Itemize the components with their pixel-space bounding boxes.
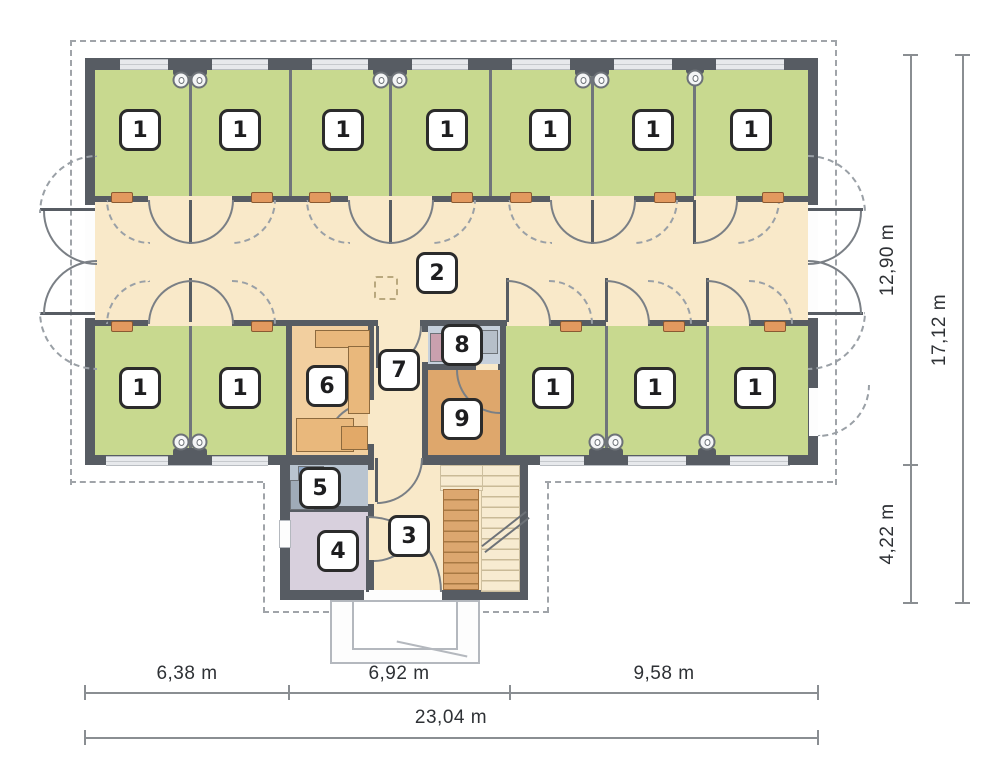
- room-number: 1: [232, 376, 247, 401]
- threshold: [764, 321, 786, 332]
- washbasin-bracket: [589, 448, 623, 464]
- room-badge-corridor: 2: [416, 252, 458, 294]
- room-number: 1: [132, 118, 147, 143]
- threshold: [111, 321, 133, 332]
- dimension-tick: [955, 602, 970, 604]
- room-badge-3: 3: [388, 515, 430, 557]
- room-badge-6: 6: [306, 365, 348, 407]
- room-badge-bedroom: 1: [632, 109, 674, 151]
- wall-block: [468, 58, 512, 70]
- dimension-tick: [817, 685, 819, 700]
- washbasin-bracket: [173, 448, 207, 464]
- room-number: 1: [439, 118, 454, 143]
- roof-outline-bottom-right: [545, 481, 833, 483]
- wall-room8-right: [500, 325, 506, 458]
- partition: [605, 325, 608, 455]
- wall-extension-top-right: [422, 455, 528, 465]
- threshold: [111, 192, 133, 203]
- room-badge-bedroom: 1: [426, 109, 468, 151]
- threshold: [663, 321, 685, 332]
- washbasin-icon: [575, 72, 592, 89]
- room-badge-bedroom: 1: [119, 109, 161, 151]
- window-right-lower: [809, 388, 818, 436]
- washbasin-icon: [391, 72, 408, 89]
- dimension-label: 4,22 m: [877, 503, 899, 564]
- wardrobe: [348, 346, 370, 414]
- service-hatch: [374, 276, 398, 300]
- threshold: [451, 192, 473, 203]
- dimension-tick: [84, 685, 86, 700]
- dimension-label: 9,58 m: [633, 663, 694, 685]
- room-number: 9: [454, 407, 469, 432]
- room-number: 2: [429, 261, 444, 286]
- roof-outline-bottom-left: [70, 481, 263, 483]
- room-number: 1: [743, 118, 758, 143]
- staircase-landing: [440, 465, 483, 491]
- room-badge-bedroom: 1: [634, 367, 676, 409]
- room-number: 3: [401, 524, 416, 549]
- door-swing: [43, 211, 97, 265]
- wall-room6-left: [286, 325, 292, 455]
- door-swing: [808, 260, 862, 314]
- dimension-line-right-outer: [962, 55, 964, 604]
- floor-plan: 1 1 1 1 1 1 1 2 1 1 1 1 1 6 7 8 9 5 4 3 …: [0, 0, 1000, 776]
- dimension-tick: [903, 464, 918, 466]
- washbasin-icon: [191, 434, 208, 451]
- room-number: 1: [335, 118, 350, 143]
- partition: [693, 70, 696, 197]
- dimension-label: 6,92 m: [368, 663, 429, 685]
- washbasin-icon: [607, 434, 624, 451]
- room-badge-bedroom: 1: [219, 109, 261, 151]
- room-badge-4: 4: [317, 530, 359, 572]
- partition: [289, 70, 292, 197]
- room-number: 1: [132, 376, 147, 401]
- room-badge-bedroom: 1: [730, 109, 772, 151]
- room-number: 1: [545, 376, 560, 401]
- dimension-tick: [903, 54, 918, 56]
- door-swing: [43, 260, 97, 314]
- door-swing-dashed: [808, 312, 866, 370]
- dimension-tick: [903, 602, 918, 604]
- room-number: 8: [454, 333, 469, 358]
- dimension-tick: [288, 685, 290, 700]
- threshold: [762, 192, 784, 203]
- window-room4-left: [279, 520, 291, 548]
- partition: [189, 70, 192, 197]
- dimension-line-bottom-inner: [85, 692, 818, 694]
- room-number: 1: [542, 118, 557, 143]
- washbasin-icon: [589, 434, 606, 451]
- dimension-tick: [817, 730, 819, 745]
- wall-block: [788, 455, 818, 465]
- dimension-tick: [84, 730, 86, 745]
- dimension-label: 17,12 m: [929, 294, 951, 366]
- washbasin-icon: [593, 72, 610, 89]
- room-number: 6: [319, 374, 334, 399]
- threshold: [251, 192, 273, 203]
- washbasin-icon: [191, 72, 208, 89]
- dimension-tick: [509, 685, 511, 700]
- room-badge-bedroom: 1: [532, 367, 574, 409]
- washbasin-icon: [699, 434, 716, 451]
- door-opening: [422, 332, 428, 362]
- room-badge-bedroom: 1: [529, 109, 571, 151]
- dimension-label: 12,90 m: [877, 224, 899, 296]
- room-number: 1: [645, 118, 660, 143]
- partition: [389, 70, 392, 197]
- partition: [189, 325, 192, 455]
- threshold: [510, 192, 532, 203]
- partition: [591, 70, 594, 197]
- washbasin-icon: [687, 70, 704, 87]
- door-swing-dashed: [818, 385, 870, 437]
- room-badge-bedroom: 1: [219, 367, 261, 409]
- door-swing-dashed: [808, 155, 866, 213]
- dimension-label: 6,38 m: [156, 663, 217, 685]
- threshold: [654, 192, 676, 203]
- room-badge-8: 8: [441, 324, 483, 366]
- room-number: 5: [312, 476, 327, 501]
- room-badge-7: 7: [378, 349, 420, 391]
- door-opening: [368, 470, 374, 504]
- room-badge-bedroom: 1: [734, 367, 776, 409]
- threshold: [251, 321, 273, 332]
- dimension-label: 23,04 m: [415, 707, 487, 729]
- room-number: 7: [391, 358, 406, 383]
- room-number: 1: [747, 376, 762, 401]
- room-badge-bedroom: 1: [119, 367, 161, 409]
- chair: [341, 426, 368, 450]
- door-swing-dashed: [39, 312, 97, 370]
- room-badge-9: 9: [441, 398, 483, 440]
- door-swing-dashed: [39, 155, 97, 213]
- threshold: [560, 321, 582, 332]
- threshold: [309, 192, 331, 203]
- washbasin-icon: [173, 72, 190, 89]
- window-bottom-right: [540, 456, 790, 466]
- room-number: 1: [647, 376, 662, 401]
- dimension-line-bottom-outer: [85, 737, 818, 739]
- washbasin-icon: [173, 434, 190, 451]
- room-number: 4: [330, 539, 345, 564]
- room-number: 1: [232, 118, 247, 143]
- wall-block: [268, 58, 312, 70]
- staircase-lower-flight: [443, 489, 479, 590]
- washbasin-icon: [373, 72, 390, 89]
- door-swing: [808, 211, 862, 265]
- wall-extension-top-left: [280, 455, 374, 465]
- room-badge-bedroom: 1: [322, 109, 364, 151]
- room-badge-5: 5: [299, 467, 341, 509]
- dimension-line-right-inner: [910, 55, 912, 604]
- partition: [489, 70, 492, 197]
- dimension-tick: [955, 54, 970, 56]
